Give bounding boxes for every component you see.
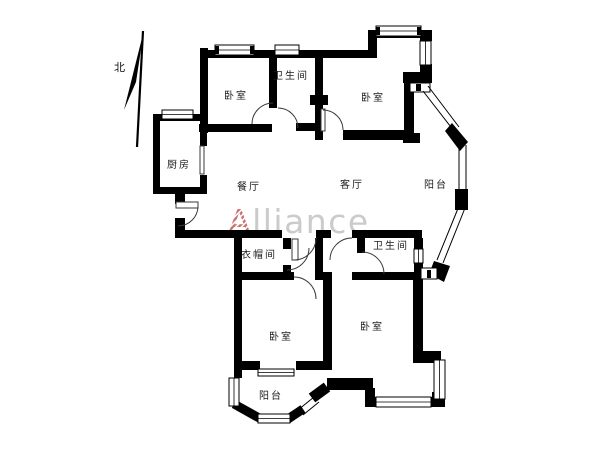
window-bathroom-top (275, 45, 299, 55)
label-bedroom-top-left: 卧室 (224, 89, 248, 102)
glazing-balcony-right (423, 86, 466, 263)
label-bathroom-top: 卫生间 (273, 69, 309, 82)
wall-segment (323, 278, 332, 370)
window-bathroom-middle (414, 249, 423, 263)
door-arc-hallway (330, 238, 352, 260)
door-arc-bedroom-top-right (323, 110, 343, 130)
door-arc-bedroom-bottom-left (294, 277, 316, 299)
window-bedroom-bottom-right-side (434, 360, 445, 399)
wall-segment (413, 278, 423, 358)
window-bedroom-top-left (215, 45, 254, 55)
label-balcony-bottom: 阳台 (259, 389, 283, 402)
label-bedroom-top-right: 卧室 (361, 91, 385, 104)
wall-segment (296, 361, 332, 370)
label-cloakroom: 衣帽间 (241, 248, 277, 261)
window-balcony-right-bottom-small (421, 268, 437, 279)
label-dining-room: 餐厅 (237, 180, 261, 193)
north-arrow: 北 (114, 30, 144, 147)
wall-segment (352, 272, 422, 280)
label-living-room: 客厅 (340, 178, 364, 191)
wall-segment (200, 175, 207, 194)
window-bedroom-top-right (376, 26, 421, 36)
floor-plan-canvas: Alliance 北 (0, 0, 600, 450)
wall-corner (455, 189, 468, 210)
wall-segment (234, 361, 260, 370)
door-arc-bathroom-middle (362, 252, 384, 274)
wall-segment (234, 272, 294, 280)
door-leaf-bedroom-top-right (321, 109, 325, 131)
wall-segment (153, 187, 207, 194)
wall-segment (352, 230, 422, 238)
window-bedroom-top-right-side (420, 41, 431, 65)
label-kitchen: 厨房 (167, 158, 191, 171)
wall-segment (357, 238, 365, 253)
wall-segment (414, 238, 423, 250)
wall-segment (315, 238, 323, 273)
wall-bevel (312, 387, 327, 398)
door-leaf-entry (176, 202, 198, 208)
wall-segment (343, 130, 413, 140)
wall-segment (420, 30, 432, 41)
label-balcony-right: 阳台 (424, 178, 448, 191)
wall-segment (310, 95, 328, 105)
wall-segment (175, 230, 282, 238)
wall-segment (153, 114, 160, 194)
window-balcony-bottom-left (229, 378, 239, 406)
label-bedroom-bottom-right: 卧室 (360, 320, 384, 333)
floor-plan: Alliance 北 (0, 0, 600, 450)
wall-corner (445, 123, 468, 151)
wall-segment (199, 124, 272, 132)
slider-bedroom-bottom-left (258, 369, 294, 376)
label-bedroom-bottom-left: 卧室 (269, 330, 293, 343)
door-leaf-corridor (292, 239, 298, 260)
wall-segment (283, 238, 291, 249)
window-balcony-right-top-small (410, 83, 430, 92)
wall-segment (316, 230, 331, 238)
sliding-door-kitchen (200, 146, 204, 174)
north-label: 北 (114, 61, 125, 74)
window-kitchen (162, 110, 193, 119)
window-bedroom-bottom-right-bottom (376, 397, 431, 407)
window-balcony-bottom (258, 414, 290, 423)
wall-segment (296, 123, 317, 131)
label-bathroom-middle: 卫生间 (373, 239, 409, 252)
door-arc-bathroom-top (278, 108, 298, 128)
